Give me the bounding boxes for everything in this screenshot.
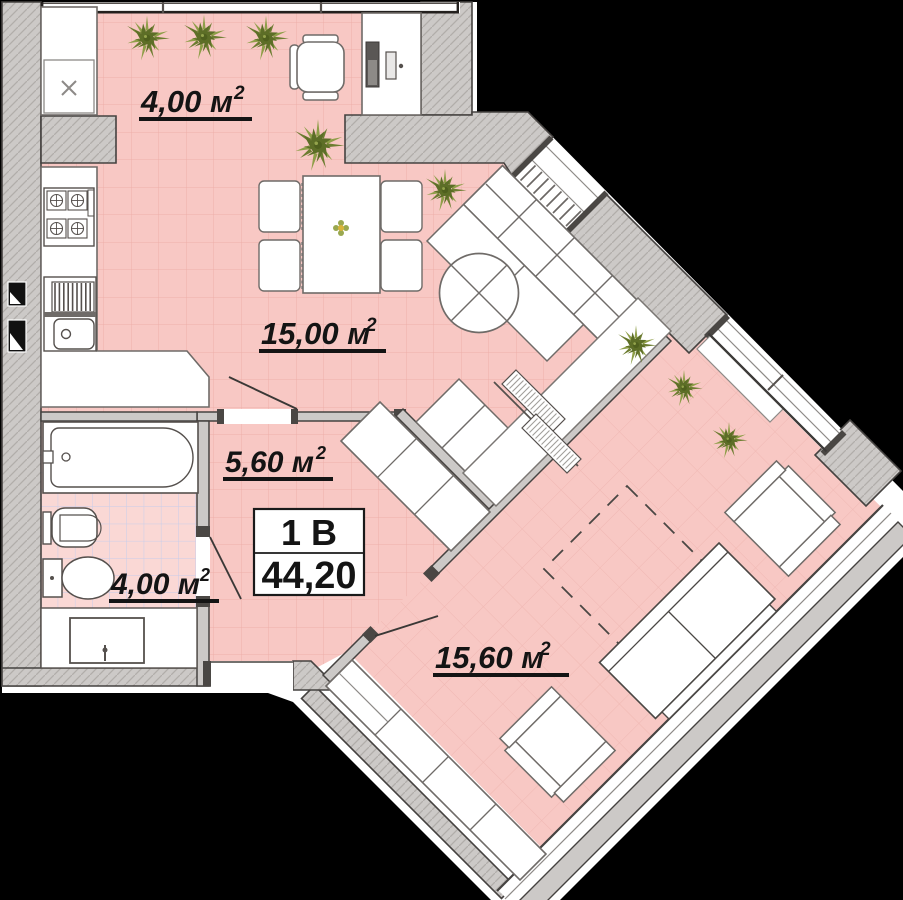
svg-text:15,60 м: 15,60 м: [435, 640, 544, 675]
svg-text:5,60 м: 5,60 м: [225, 446, 314, 479]
svg-text:15,00 м: 15,00 м: [261, 316, 370, 351]
svg-text:4,00 м: 4,00 м: [110, 568, 200, 601]
svg-text:2: 2: [315, 443, 326, 463]
svg-text:2: 2: [365, 315, 377, 336]
svg-text:1 В: 1 В: [281, 512, 337, 553]
svg-text:44,20: 44,20: [261, 555, 356, 597]
svg-text:2: 2: [199, 565, 210, 585]
svg-text:4,00 м: 4,00 м: [140, 84, 233, 119]
svg-text:2: 2: [539, 639, 551, 660]
svg-text:2: 2: [233, 83, 245, 104]
